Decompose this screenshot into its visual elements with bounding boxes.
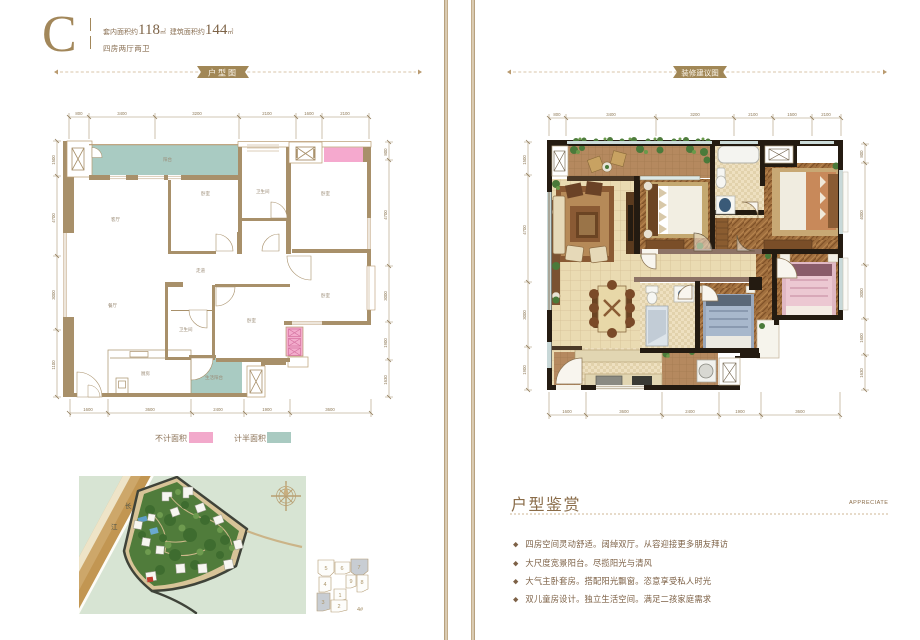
svg-text:2400: 2400 <box>213 407 223 412</box>
svg-text:9: 9 <box>349 579 352 585</box>
svg-text:卧室: 卧室 <box>247 317 256 324</box>
svg-text:卫生间: 卫生间 <box>256 188 270 195</box>
svg-text:2100: 2100 <box>262 111 272 116</box>
svg-text:4000: 4000 <box>859 210 864 220</box>
svg-text:阳台: 阳台 <box>163 156 172 163</box>
svg-text:客厅: 客厅 <box>111 216 120 223</box>
svg-text:3600: 3600 <box>619 409 629 414</box>
svg-text:1630: 1630 <box>383 375 388 385</box>
svg-text:7: 7 <box>357 565 360 571</box>
svg-text:2100: 2100 <box>340 111 350 116</box>
svg-text:3400: 3400 <box>606 112 616 117</box>
svg-text:1900: 1900 <box>262 407 272 412</box>
svg-text:卧室: 卧室 <box>321 292 330 299</box>
svg-text:卧室: 卧室 <box>201 190 210 197</box>
svg-text:800: 800 <box>553 112 561 117</box>
svg-text:6: 6 <box>340 566 343 572</box>
svg-text:2: 2 <box>337 604 340 610</box>
svg-text:1600: 1600 <box>859 333 864 343</box>
svg-text:3000: 3000 <box>383 291 388 301</box>
svg-text:1600: 1600 <box>562 409 572 414</box>
svg-text:4700: 4700 <box>522 225 527 235</box>
svg-text:4#: 4# <box>357 607 364 613</box>
svg-text:1900: 1900 <box>522 365 527 375</box>
svg-text:1630: 1630 <box>859 368 864 378</box>
svg-text:3200: 3200 <box>192 111 202 116</box>
svg-text:1100: 1100 <box>51 360 56 370</box>
svg-text:走道: 走道 <box>196 267 205 274</box>
svg-text:1500: 1500 <box>51 155 56 165</box>
svg-text:1900: 1900 <box>735 409 745 414</box>
svg-text:餐厅: 餐厅 <box>108 302 117 309</box>
svg-text:1500: 1500 <box>522 155 527 165</box>
svg-text:3600: 3600 <box>325 407 335 412</box>
svg-text:1600: 1600 <box>83 407 93 412</box>
svg-text:800: 800 <box>859 150 864 158</box>
svg-text:5: 5 <box>324 566 327 572</box>
svg-text:4700: 4700 <box>51 213 56 223</box>
svg-text:1600: 1600 <box>304 111 314 116</box>
svg-text:2400: 2400 <box>685 409 695 414</box>
svg-text:卧室: 卧室 <box>321 190 330 197</box>
svg-text:3000: 3000 <box>859 288 864 298</box>
svg-text:厨房: 厨房 <box>141 370 150 377</box>
svg-text:长: 长 <box>125 501 132 510</box>
svg-text:800: 800 <box>383 148 388 156</box>
svg-text:800: 800 <box>75 111 83 116</box>
svg-text:1: 1 <box>338 593 341 599</box>
svg-text:2100: 2100 <box>821 112 831 117</box>
svg-text:户型图: 户型图 <box>208 68 238 78</box>
svg-text:2100: 2100 <box>748 112 758 117</box>
svg-text:3400: 3400 <box>117 111 127 116</box>
svg-text:装修建议图: 装修建议图 <box>681 68 719 78</box>
svg-text:3600: 3600 <box>795 409 805 414</box>
svg-text:生活阳台: 生活阳台 <box>205 374 223 381</box>
svg-text:4700: 4700 <box>383 210 388 220</box>
svg-text:1900: 1900 <box>383 338 388 348</box>
svg-text:4: 4 <box>323 582 326 588</box>
svg-text:卫生间: 卫生间 <box>179 326 193 333</box>
svg-text:3000: 3000 <box>51 290 56 300</box>
svg-text:3: 3 <box>321 600 324 606</box>
svg-text:江: 江 <box>111 523 118 531</box>
svg-text:8: 8 <box>360 580 363 586</box>
svg-text:1500: 1500 <box>787 112 797 117</box>
svg-text:3600: 3600 <box>145 407 155 412</box>
svg-text:3000: 3000 <box>522 310 527 320</box>
svg-text:3200: 3200 <box>690 112 700 117</box>
